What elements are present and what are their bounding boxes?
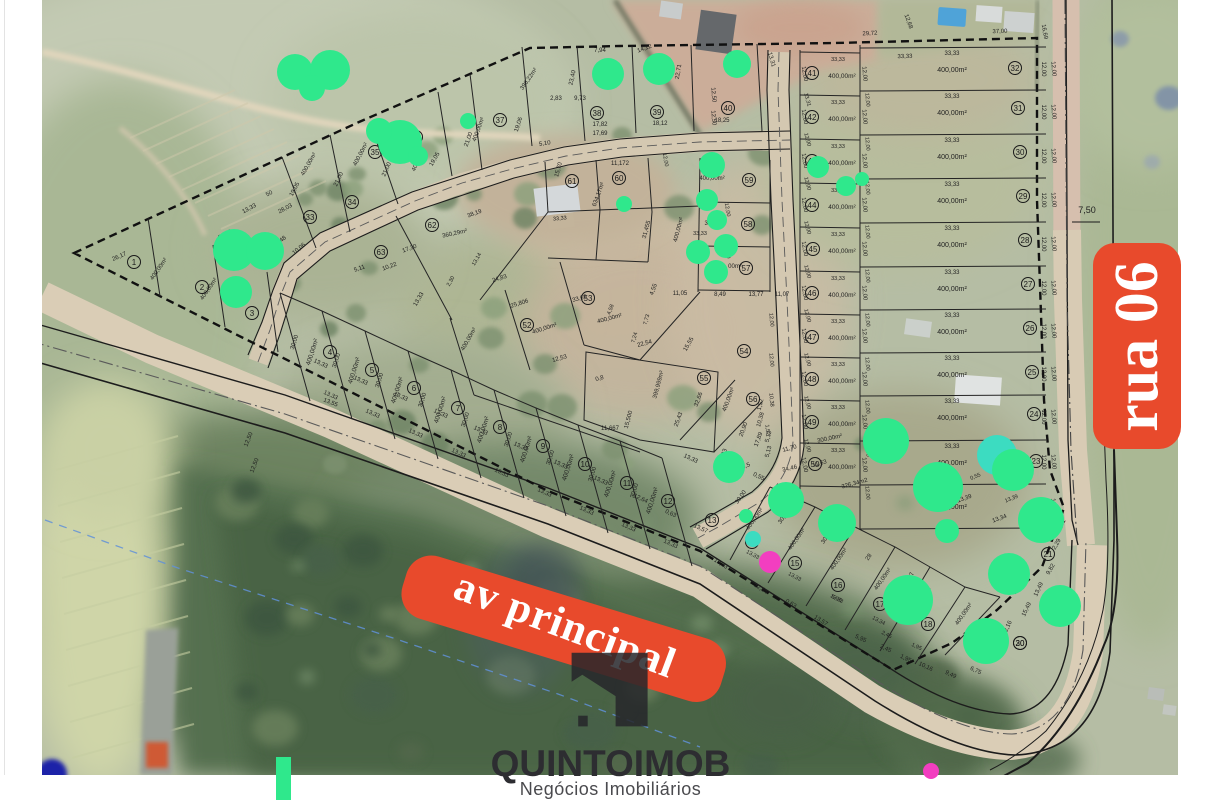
svg-text:400,00m²: 400,00m² <box>937 198 967 205</box>
svg-text:57: 57 <box>742 264 751 273</box>
svg-text:33,33: 33,33 <box>831 232 845 238</box>
svg-text:25,43: 25,43 <box>674 411 685 428</box>
svg-text:17,69: 17,69 <box>592 131 608 137</box>
svg-text:12,00: 12,00 <box>802 132 811 147</box>
svg-text:13,33: 13,33 <box>787 571 802 583</box>
svg-text:12,00: 12,00 <box>1040 323 1046 339</box>
svg-text:28: 28 <box>865 552 874 561</box>
svg-text:400,00m²: 400,00m² <box>300 152 318 177</box>
svg-text:12,00: 12,00 <box>860 197 867 213</box>
svg-text:12,64: 12,64 <box>632 493 649 505</box>
svg-text:21,00: 21,00 <box>381 161 393 178</box>
svg-text:399,999m²: 399,999m² <box>652 370 665 399</box>
svg-text:33,33: 33,33 <box>944 226 960 232</box>
svg-text:33,33: 33,33 <box>831 362 845 368</box>
svg-text:400,00m²: 400,00m² <box>937 286 967 293</box>
svg-text:25: 25 <box>1028 368 1037 377</box>
svg-text:12: 12 <box>664 497 673 506</box>
svg-text:33,33: 33,33 <box>831 144 845 150</box>
svg-text:5,11: 5,11 <box>353 264 366 274</box>
svg-text:24,83: 24,83 <box>492 274 509 285</box>
svg-text:400,00m²: 400,00m² <box>937 110 967 117</box>
svg-text:33,33: 33,33 <box>944 51 960 57</box>
svg-text:38: 38 <box>593 109 602 118</box>
svg-text:17,82: 17,82 <box>592 122 608 128</box>
svg-text:13,77: 13,77 <box>748 292 764 298</box>
svg-text:28,03: 28,03 <box>277 203 294 216</box>
svg-text:13,14: 13,14 <box>471 252 483 267</box>
svg-text:13,33: 13,33 <box>493 468 510 480</box>
svg-text:400,00m²: 400,00m² <box>828 421 856 428</box>
svg-text:12,00: 12,00 <box>800 414 809 430</box>
svg-text:00m²: 00m² <box>728 264 742 270</box>
svg-text:30: 30 <box>1016 148 1025 157</box>
svg-text:11,70: 11,70 <box>782 444 798 454</box>
svg-text:30,00: 30,00 <box>461 411 472 428</box>
svg-text:13,39: 13,39 <box>1004 494 1019 505</box>
svg-text:33,33: 33,33 <box>944 94 960 100</box>
svg-text:25,806: 25,806 <box>510 298 530 310</box>
svg-text:5,13: 5,13 <box>765 445 774 458</box>
svg-text:33,33: 33,33 <box>693 231 707 237</box>
svg-text:400,00m²: 400,00m² <box>673 217 685 243</box>
svg-text:12,00: 12,00 <box>800 457 809 473</box>
svg-text:13,33: 13,33 <box>682 453 699 465</box>
svg-text:9: 9 <box>541 442 546 451</box>
svg-text:56: 56 <box>749 395 758 404</box>
svg-text:12,00: 12,00 <box>860 414 867 430</box>
svg-text:300,00m²: 300,00m² <box>817 433 843 444</box>
svg-text:10: 10 <box>581 460 590 469</box>
svg-text:33,33: 33,33 <box>944 182 960 188</box>
svg-text:15,500: 15,500 <box>624 409 635 429</box>
svg-text:12,00: 12,00 <box>860 371 867 387</box>
svg-text:13,33: 13,33 <box>352 375 369 387</box>
svg-text:38,19: 38,19 <box>467 208 484 219</box>
svg-text:13,33: 13,33 <box>413 291 426 308</box>
svg-text:13,57: 13,57 <box>692 523 709 535</box>
svg-text:2,45: 2,45 <box>880 630 892 640</box>
svg-text:12,00: 12,00 <box>863 357 870 371</box>
svg-text:33,33: 33,33 <box>944 270 960 276</box>
svg-text:2,83: 2,83 <box>550 96 562 102</box>
svg-text:37,00: 37,00 <box>992 29 1008 36</box>
svg-text:13,34: 13,34 <box>871 615 886 627</box>
svg-text:50: 50 <box>265 190 274 199</box>
svg-text:13,33: 13,33 <box>450 448 467 460</box>
svg-text:12,00: 12,00 <box>863 313 870 327</box>
svg-text:18: 18 <box>924 620 933 629</box>
svg-text:5: 5 <box>370 366 375 375</box>
svg-text:0,55: 0,55 <box>970 472 982 482</box>
svg-text:12,00: 12,00 <box>1049 323 1056 339</box>
svg-text:33,33: 33,33 <box>831 276 845 282</box>
svg-text:4,55: 4,55 <box>649 283 659 297</box>
svg-text:52: 52 <box>523 321 532 330</box>
svg-text:0,63: 0,63 <box>664 509 678 520</box>
svg-text:12,00: 12,00 <box>863 269 870 283</box>
svg-text:400,00m²: 400,00m² <box>828 248 856 255</box>
svg-text:34,46: 34,46 <box>782 464 799 473</box>
svg-text:12,00: 12,00 <box>1049 280 1056 296</box>
svg-text:44: 44 <box>808 201 817 210</box>
svg-text:13,34: 13,34 <box>992 513 1009 524</box>
svg-text:12,00: 12,00 <box>863 400 870 414</box>
svg-text:21,00: 21,00 <box>333 171 345 188</box>
svg-text:2,30: 2,30 <box>446 275 457 287</box>
svg-text:400,00m²: 400,00m² <box>937 372 967 379</box>
svg-text:17,89: 17,89 <box>754 431 765 448</box>
svg-text:39: 39 <box>653 108 662 117</box>
svg-text:12,00: 12,00 <box>767 353 774 367</box>
svg-text:33,33: 33,33 <box>831 405 845 411</box>
svg-text:42: 42 <box>808 113 817 122</box>
svg-text:12,00: 12,00 <box>800 285 809 301</box>
svg-text:12,00: 12,00 <box>802 264 811 279</box>
svg-text:12,00: 12,00 <box>802 220 811 235</box>
svg-text:12,00: 12,00 <box>800 66 809 82</box>
svg-text:396,22m²: 396,22m² <box>519 67 538 91</box>
svg-text:12,00: 12,00 <box>800 197 809 213</box>
svg-text:33,33: 33,33 <box>831 448 845 454</box>
svg-text:12,00: 12,00 <box>1040 366 1046 382</box>
svg-text:54: 54 <box>740 347 749 356</box>
svg-text:13,33: 13,33 <box>312 358 329 370</box>
svg-text:33,33: 33,33 <box>553 215 567 222</box>
svg-text:8: 8 <box>498 423 503 432</box>
svg-text:12,00: 12,00 <box>860 66 867 82</box>
svg-text:40: 40 <box>724 104 733 113</box>
svg-text:2,45: 2,45 <box>879 644 893 655</box>
svg-text:10,22: 10,22 <box>382 261 399 272</box>
svg-text:12,00: 12,00 <box>1049 61 1056 77</box>
svg-text:13,33: 13,33 <box>241 203 258 216</box>
svg-text:11,667: 11,667 <box>601 426 620 432</box>
svg-text:8,49: 8,49 <box>714 292 726 298</box>
svg-text:12,00: 12,00 <box>800 109 809 125</box>
svg-text:5,10: 5,10 <box>539 140 552 148</box>
svg-text:27: 27 <box>1024 280 1033 289</box>
svg-text:12,00: 12,00 <box>800 328 809 344</box>
svg-text:33,33: 33,33 <box>944 444 960 450</box>
svg-text:33,33: 33,33 <box>831 57 845 63</box>
svg-text:12,00: 12,00 <box>863 225 870 239</box>
svg-text:400,00m²: 400,00m² <box>149 257 168 281</box>
svg-text:12,53: 12,53 <box>552 354 569 364</box>
svg-text:18,12: 18,12 <box>652 121 668 127</box>
svg-text:21: 21 <box>1044 550 1053 559</box>
svg-text:10,38: 10,38 <box>767 393 774 407</box>
svg-text:24: 24 <box>1030 410 1039 419</box>
svg-text:15,70: 15,70 <box>554 161 564 178</box>
svg-text:12,00: 12,00 <box>860 457 867 473</box>
svg-text:63: 63 <box>377 248 386 257</box>
svg-text:12,50: 12,50 <box>249 457 260 474</box>
svg-text:19,05: 19,05 <box>289 181 302 198</box>
svg-text:13,33: 13,33 <box>578 505 595 517</box>
svg-text:12,50: 12,50 <box>243 431 254 448</box>
svg-text:400,00m²: 400,00m² <box>828 292 856 299</box>
svg-text:11,05: 11,05 <box>673 291 688 297</box>
svg-text:13,33: 13,33 <box>620 522 637 534</box>
svg-text:13,33: 13,33 <box>713 558 729 571</box>
svg-text:360,29m²: 360,29m² <box>442 228 468 239</box>
svg-text:45: 45 <box>809 245 818 254</box>
svg-text:14,12: 14,12 <box>637 43 654 54</box>
svg-text:12,00: 12,00 <box>802 176 811 191</box>
svg-text:12,00: 12,00 <box>1049 104 1056 120</box>
svg-text:1,95: 1,95 <box>910 642 922 652</box>
svg-text:400,00m²: 400,00m² <box>460 327 478 352</box>
svg-text:46: 46 <box>808 289 817 298</box>
svg-text:22,71: 22,71 <box>675 63 684 79</box>
svg-text:6: 6 <box>412 384 417 393</box>
svg-text:48: 48 <box>808 375 817 384</box>
svg-text:13,33: 13,33 <box>745 549 760 561</box>
svg-text:400,00m²: 400,00m² <box>937 329 967 336</box>
svg-text:13: 13 <box>708 516 717 525</box>
svg-text:59: 59 <box>745 176 754 185</box>
svg-text:400,00m²: 400,00m² <box>828 335 856 342</box>
svg-text:12,64: 12,64 <box>753 583 769 596</box>
svg-text:12,00: 12,00 <box>1040 409 1046 425</box>
svg-text:11: 11 <box>623 479 632 488</box>
svg-text:400,00m²: 400,00m² <box>828 464 856 471</box>
svg-text:12,00: 12,00 <box>1040 148 1046 164</box>
svg-text:32,66: 32,66 <box>694 391 705 408</box>
svg-text:400,00m²: 400,00m² <box>954 602 973 626</box>
svg-text:26: 26 <box>1026 324 1035 333</box>
svg-text:400,00m²: 400,00m² <box>829 547 848 571</box>
svg-text:12,00: 12,00 <box>1040 104 1046 120</box>
svg-text:33,33: 33,33 <box>944 313 960 319</box>
svg-text:6,75: 6,75 <box>969 666 983 677</box>
svg-text:12,00: 12,00 <box>800 371 809 387</box>
svg-text:47: 47 <box>808 333 817 342</box>
svg-text:58: 58 <box>744 220 753 229</box>
svg-text:30,00: 30,00 <box>734 489 748 505</box>
svg-text:0,8: 0,8 <box>595 375 605 383</box>
svg-text:60: 60 <box>615 174 624 183</box>
svg-text:12,00: 12,00 <box>767 313 774 327</box>
svg-text:12,00: 12,00 <box>1040 280 1046 296</box>
svg-text:12,00: 12,00 <box>860 109 867 125</box>
svg-text:12,00: 12,00 <box>860 328 867 344</box>
svg-text:12,00: 12,00 <box>1049 366 1056 382</box>
svg-text:35: 35 <box>371 148 380 157</box>
svg-text:33,33: 33,33 <box>831 319 845 325</box>
svg-text:13,33: 13,33 <box>364 408 381 420</box>
svg-text:30,00: 30,00 <box>332 352 343 369</box>
svg-text:12,00: 12,00 <box>1040 192 1046 208</box>
svg-text:9,82: 9,82 <box>1046 562 1057 576</box>
svg-text:400,00m²: 400,00m² <box>722 387 736 413</box>
svg-text:7,50: 7,50 <box>1078 205 1096 215</box>
svg-text:400,00m²: 400,00m² <box>937 415 967 422</box>
svg-text:33,33: 33,33 <box>944 138 960 144</box>
svg-text:15: 15 <box>791 559 800 568</box>
svg-text:12,00: 12,00 <box>1040 236 1046 252</box>
svg-text:1: 1 <box>132 258 137 267</box>
svg-text:12,00: 12,00 <box>802 308 811 323</box>
svg-text:12,00: 12,00 <box>802 352 811 367</box>
svg-text:19,06: 19,06 <box>514 116 525 133</box>
svg-text:20,90: 20,90 <box>739 421 750 438</box>
svg-text:9,73: 9,73 <box>574 96 586 102</box>
svg-text:10,16: 10,16 <box>917 661 934 673</box>
svg-text:12,00: 12,00 <box>1049 236 1056 252</box>
svg-text:61: 61 <box>568 177 577 186</box>
svg-text:11,07: 11,07 <box>775 292 790 298</box>
svg-text:33,33: 33,33 <box>897 54 913 61</box>
svg-text:4: 4 <box>328 348 333 357</box>
svg-text:400,00m²: 400,00m² <box>828 73 856 80</box>
svg-text:12,00: 12,00 <box>661 153 669 168</box>
svg-text:12,50: 12,50 <box>709 110 716 126</box>
svg-text:23,40: 23,40 <box>569 69 578 86</box>
svg-text:13,31: 13,31 <box>802 92 811 107</box>
svg-text:12,00: 12,00 <box>1040 454 1046 470</box>
svg-text:400,00m²: 400,00m² <box>828 116 856 123</box>
svg-text:16: 16 <box>834 581 843 590</box>
svg-text:400,00m²: 400,00m² <box>787 527 806 551</box>
svg-text:1,52: 1,52 <box>757 398 766 411</box>
svg-text:12,00: 12,00 <box>863 137 870 151</box>
svg-text:28: 28 <box>1021 236 1030 245</box>
svg-text:12,00: 12,00 <box>1049 148 1056 164</box>
svg-text:16,69: 16,69 <box>1040 24 1049 40</box>
svg-text:13,33: 13,33 <box>829 593 844 605</box>
svg-text:32: 32 <box>1011 64 1020 73</box>
svg-text:12,00: 12,00 <box>860 153 867 169</box>
svg-text:15,49: 15,49 <box>1021 601 1033 618</box>
svg-text:1,52: 1,52 <box>764 424 771 435</box>
svg-text:30,00: 30,00 <box>290 334 301 351</box>
svg-text:400,00m²: 400,00m² <box>353 142 370 167</box>
svg-text:30: 30 <box>1016 639 1025 648</box>
svg-text:37: 37 <box>496 116 505 125</box>
svg-text:7,73: 7,73 <box>643 314 652 326</box>
svg-text:15,55: 15,55 <box>683 336 696 353</box>
svg-text:12,00: 12,00 <box>863 93 870 107</box>
svg-text:19,05: 19,05 <box>429 151 442 168</box>
svg-text:9,49: 9,49 <box>944 670 958 681</box>
svg-text:62: 62 <box>428 221 437 230</box>
svg-text:13,33: 13,33 <box>662 539 679 551</box>
svg-text:12,00: 12,00 <box>863 486 870 500</box>
svg-text:12,68: 12,68 <box>903 14 914 31</box>
svg-text:400,00m²: 400,00m² <box>937 242 967 249</box>
svg-text:33: 33 <box>306 213 315 222</box>
svg-text:10,06: 10,06 <box>292 242 308 257</box>
svg-text:33,33: 33,33 <box>831 100 845 106</box>
svg-text:11,172: 11,172 <box>611 161 630 167</box>
svg-text:400,00m²: 400,00m² <box>828 378 856 385</box>
svg-text:5,95: 5,95 <box>854 634 868 645</box>
svg-text:49: 49 <box>808 418 817 427</box>
svg-text:31: 31 <box>1014 104 1023 113</box>
svg-text:12,00: 12,00 <box>1040 61 1046 77</box>
svg-text:33,33: 33,33 <box>944 356 960 362</box>
svg-text:12,50: 12,50 <box>709 87 716 103</box>
svg-text:29: 29 <box>1019 192 1028 201</box>
svg-text:12,00: 12,00 <box>860 241 867 257</box>
svg-text:400,00m²: 400,00m² <box>937 154 967 161</box>
svg-text:400,00m²: 400,00m² <box>828 160 856 167</box>
svg-text:400,00m²: 400,00m² <box>937 67 967 74</box>
svg-text:400,00m²: 400,00m² <box>828 204 856 211</box>
svg-text:29,72: 29,72 <box>862 31 878 38</box>
svg-text:33,33: 33,33 <box>944 399 960 405</box>
svg-text:400,00m²: 400,00m² <box>532 322 558 336</box>
svg-text:12,00: 12,00 <box>860 285 867 301</box>
svg-text:7: 7 <box>456 404 461 413</box>
svg-text:34: 34 <box>348 198 357 207</box>
svg-text:26,17: 26,17 <box>112 251 129 263</box>
svg-text:55: 55 <box>700 374 709 383</box>
svg-text:12,00: 12,00 <box>1049 192 1056 208</box>
svg-text:41: 41 <box>808 69 817 78</box>
svg-text:7,94: 7,94 <box>594 48 606 54</box>
svg-text:13,33: 13,33 <box>407 428 424 440</box>
svg-text:12,00: 12,00 <box>802 395 811 410</box>
svg-text:12,00: 12,00 <box>1049 409 1056 425</box>
svg-text:12,00: 12,00 <box>800 241 809 257</box>
svg-text:3: 3 <box>250 309 255 318</box>
